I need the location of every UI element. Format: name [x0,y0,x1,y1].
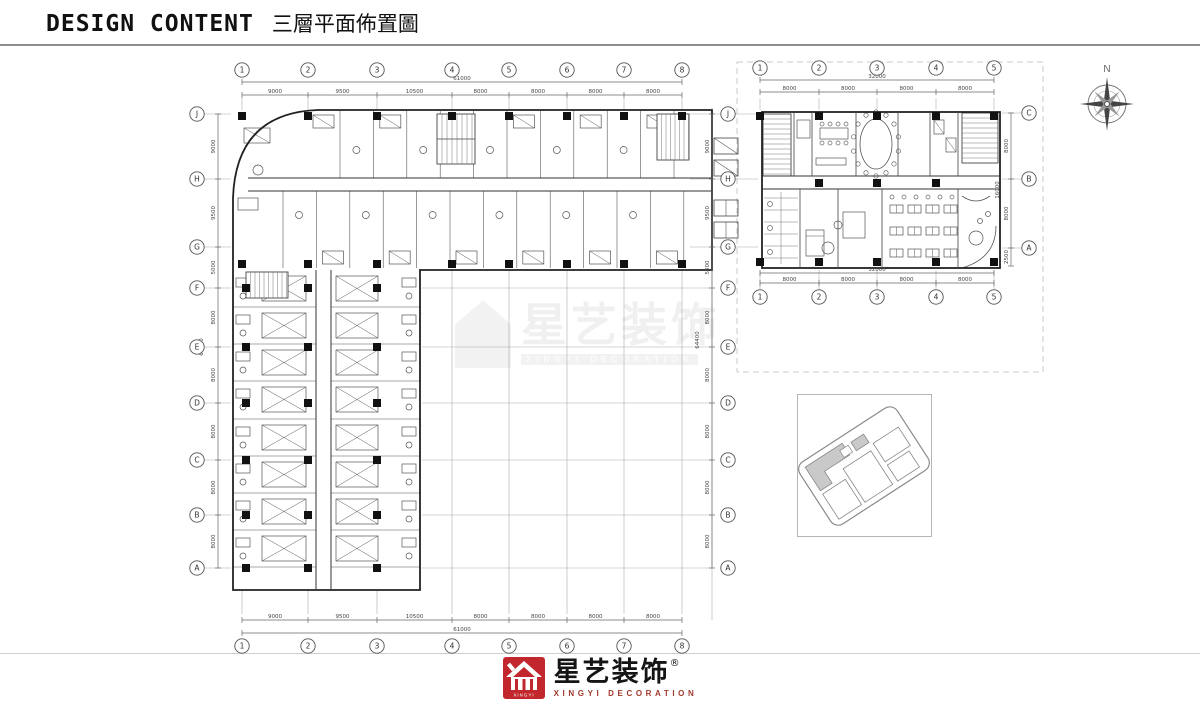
header-divider [0,44,1200,46]
dim-label: 9000 [268,89,282,95]
dim-label: 61000 [453,627,471,633]
dim-label: 8000 [705,424,711,438]
grid-bubble: 1 [753,61,767,75]
dim-label: 8000 [705,534,711,548]
svg-text:8: 8 [680,66,685,75]
dim-label: 8000 [1004,139,1010,153]
grid-bubble: 4 [445,639,459,653]
dim-label: 8000 [958,277,972,283]
dim-label: 8000 [211,368,217,382]
dim-label: 8000 [958,86,972,92]
svg-text:E: E [195,343,200,352]
dim-label: 8000 [531,89,545,95]
dim-label: 8000 [705,368,711,382]
brand-logo-text: 星艺装饰® XINGYI DECORATION [554,659,698,698]
grid-bubble: 4 [929,61,943,75]
dim-label: 8000 [474,614,488,620]
svg-text:J: J [195,110,198,119]
svg-text:D: D [194,399,200,408]
page-subtitle: 三層平面佈置圖 [272,8,419,38]
grid-bubble: 7 [617,639,631,653]
dim-label: 9500 [336,89,350,95]
grid-bubble: 4 [445,63,459,77]
grid-bubble: D [721,396,735,410]
grid-bubble: 2 [812,61,826,75]
grid-bubble: 5 [502,639,516,653]
svg-text:2: 2 [817,64,822,73]
svg-text:1: 1 [240,642,245,651]
svg-text:6: 6 [565,66,570,75]
footer: XINGYI 星艺装饰® XINGYI DECORATION [0,657,1200,699]
brand-name-en: XINGYI DECORATION [554,689,698,698]
grid-bubble: 3 [370,63,384,77]
grid-bubble: J [190,107,204,121]
dim-label: 64400 [695,331,701,349]
dim-label: 8000 [783,86,797,92]
dim-label: 10500 [406,89,424,95]
svg-text:8: 8 [680,642,685,651]
dim-label: 8000 [531,614,545,620]
grid-bubble: 7 [617,63,631,77]
grid-bubble: 6 [560,63,574,77]
dim-label: 9000 [705,139,711,153]
svg-text:1: 1 [758,293,763,302]
svg-text:A: A [194,564,200,573]
compass-north-label: N [1103,64,1110,75]
grid-bubble: H [721,172,735,186]
svg-text:5: 5 [507,642,512,651]
dim-label: 8000 [783,277,797,283]
svg-text:A: A [725,564,731,573]
svg-text:1: 1 [758,64,763,73]
grid-bubble: G [721,240,735,254]
grid-bubble: F [721,281,735,295]
svg-text:G: G [725,243,731,252]
svg-text:J: J [726,110,729,119]
svg-text:3: 3 [875,64,880,73]
svg-text:F: F [726,284,730,293]
dim-label: 9000 [211,139,217,153]
dim-label: 9500 [211,206,217,220]
grid-bubble: 1 [235,639,249,653]
svg-text:H: H [194,175,200,184]
grid-bubble: 2 [301,63,315,77]
grid-bubble: 3 [870,290,884,304]
svg-text:B: B [194,511,199,520]
compass-star [1080,77,1134,131]
grid-bubble: 2 [301,639,315,653]
dim-label: 8000 [589,614,603,620]
grid-bubble: 5 [502,63,516,77]
page: DESIGN CONTENT 三層平面佈置圖 星艺装饰 XINGYI DECOR… [0,0,1200,714]
grid-bubble: 6 [560,639,574,653]
grid-bubbles: 1122334455667788JJHHGGFFEEDDCCBBAA112233… [190,61,1036,653]
dim-label: 61000 [453,76,471,82]
svg-text:3: 3 [375,66,380,75]
grid-bubble: 5 [987,61,1001,75]
svg-text:B: B [1026,175,1031,184]
svg-text:A: A [1026,244,1032,253]
dim-label: 8000 [900,277,914,283]
grid-bubble: J [721,107,735,121]
grid-bubble: 2 [812,290,826,304]
svg-text:7: 7 [622,66,627,75]
grid-bubble: C [1022,106,1036,120]
svg-text:7: 7 [622,642,627,651]
dim-label: 8000 [841,277,855,283]
floor-plan-canvas: 9000950010500800080008000800061000900095… [0,0,1200,714]
svg-text:C: C [725,456,730,465]
grid-bubble: G [190,240,204,254]
svg-text:5: 5 [992,64,997,73]
grid-bubble: A [190,561,204,575]
svg-text:XINGYI: XINGYI [513,693,534,698]
grid-bubble: E [721,340,735,354]
page-title: DESIGN CONTENT [46,11,254,37]
svg-text:1: 1 [240,66,245,75]
compass-rose: N [1073,60,1141,136]
svg-text:H: H [725,175,731,184]
svg-text:3: 3 [375,642,380,651]
grid-bubble: 5 [987,290,1001,304]
grid-bubble: B [721,508,735,522]
dim-label: 8000 [474,89,488,95]
dim-label: 32000 [868,267,886,273]
grid-bubble: 1 [753,290,767,304]
grid-bubble: 8 [675,639,689,653]
svg-text:D: D [725,399,731,408]
dim-label: 8000 [211,534,217,548]
dim-label: 16000 [995,181,1001,199]
dim-label: 8000 [900,86,914,92]
grid-bubble: 1 [235,63,249,77]
dim-label: 9000 [268,614,282,620]
dim-label: 8000 [1004,206,1010,220]
grid-bubble: D [190,396,204,410]
brand-logo: XINGYI 星艺装饰® XINGYI DECORATION [503,657,698,699]
svg-text:4: 4 [450,66,455,75]
dim-label: 5000 [211,260,217,274]
dim-label: 8000 [646,89,660,95]
svg-text:2: 2 [306,66,311,75]
grid-bubble: F [190,281,204,295]
svg-text:5: 5 [992,293,997,302]
grid-bubble: 3 [870,61,884,75]
dim-label: 8000 [589,89,603,95]
grid-bubble: A [1022,241,1036,255]
dim-label: 8000 [705,310,711,324]
dim-label: 9500 [336,614,350,620]
svg-text:E: E [726,343,731,352]
svg-text:2: 2 [306,642,311,651]
dim-label: 8000 [211,480,217,494]
dimension-lines: 9000950010500800080008000800061000900095… [199,74,1014,636]
dim-label: 8000 [841,86,855,92]
grid-bubble: A [721,561,735,575]
svg-text:C: C [1026,109,1031,118]
svg-text:2: 2 [817,293,822,302]
grid-bubble: 8 [675,63,689,77]
grid-bubble: B [190,508,204,522]
dim-label: 5000 [705,260,711,274]
brand-name-zh: 星艺装饰 [554,657,670,688]
svg-text:4: 4 [934,64,939,73]
svg-text:F: F [195,284,199,293]
dim-label: 8000 [705,480,711,494]
svg-text:B: B [725,511,730,520]
page-header: DESIGN CONTENT 三層平面佈置圖 [46,8,419,38]
grid-bubble: E [190,340,204,354]
dim-label: 8000 [211,310,217,324]
grid-bubble: C [721,453,735,467]
grid-bubble: 4 [929,290,943,304]
grid-bubble: B [1022,172,1036,186]
dim-label: 8000 [211,424,217,438]
svg-text:G: G [194,243,200,252]
svg-text:5: 5 [507,66,512,75]
grid-bubble: C [190,453,204,467]
grid-bubble: 3 [370,639,384,653]
dim-label: 8000 [646,614,660,620]
dim-label: 10500 [406,614,424,620]
svg-text:3: 3 [875,293,880,302]
dim-label: 9500 [705,206,711,220]
brand-reg-mark: ® [670,658,682,669]
svg-text:6: 6 [565,642,570,651]
brand-logo-icon: XINGYI [503,657,545,699]
grid-bubble: H [190,172,204,186]
svg-text:4: 4 [450,642,455,651]
site-key-plan [797,394,932,537]
dim-label: 2500 [1004,250,1010,264]
svg-text:4: 4 [934,293,939,302]
svg-text:C: C [194,456,199,465]
